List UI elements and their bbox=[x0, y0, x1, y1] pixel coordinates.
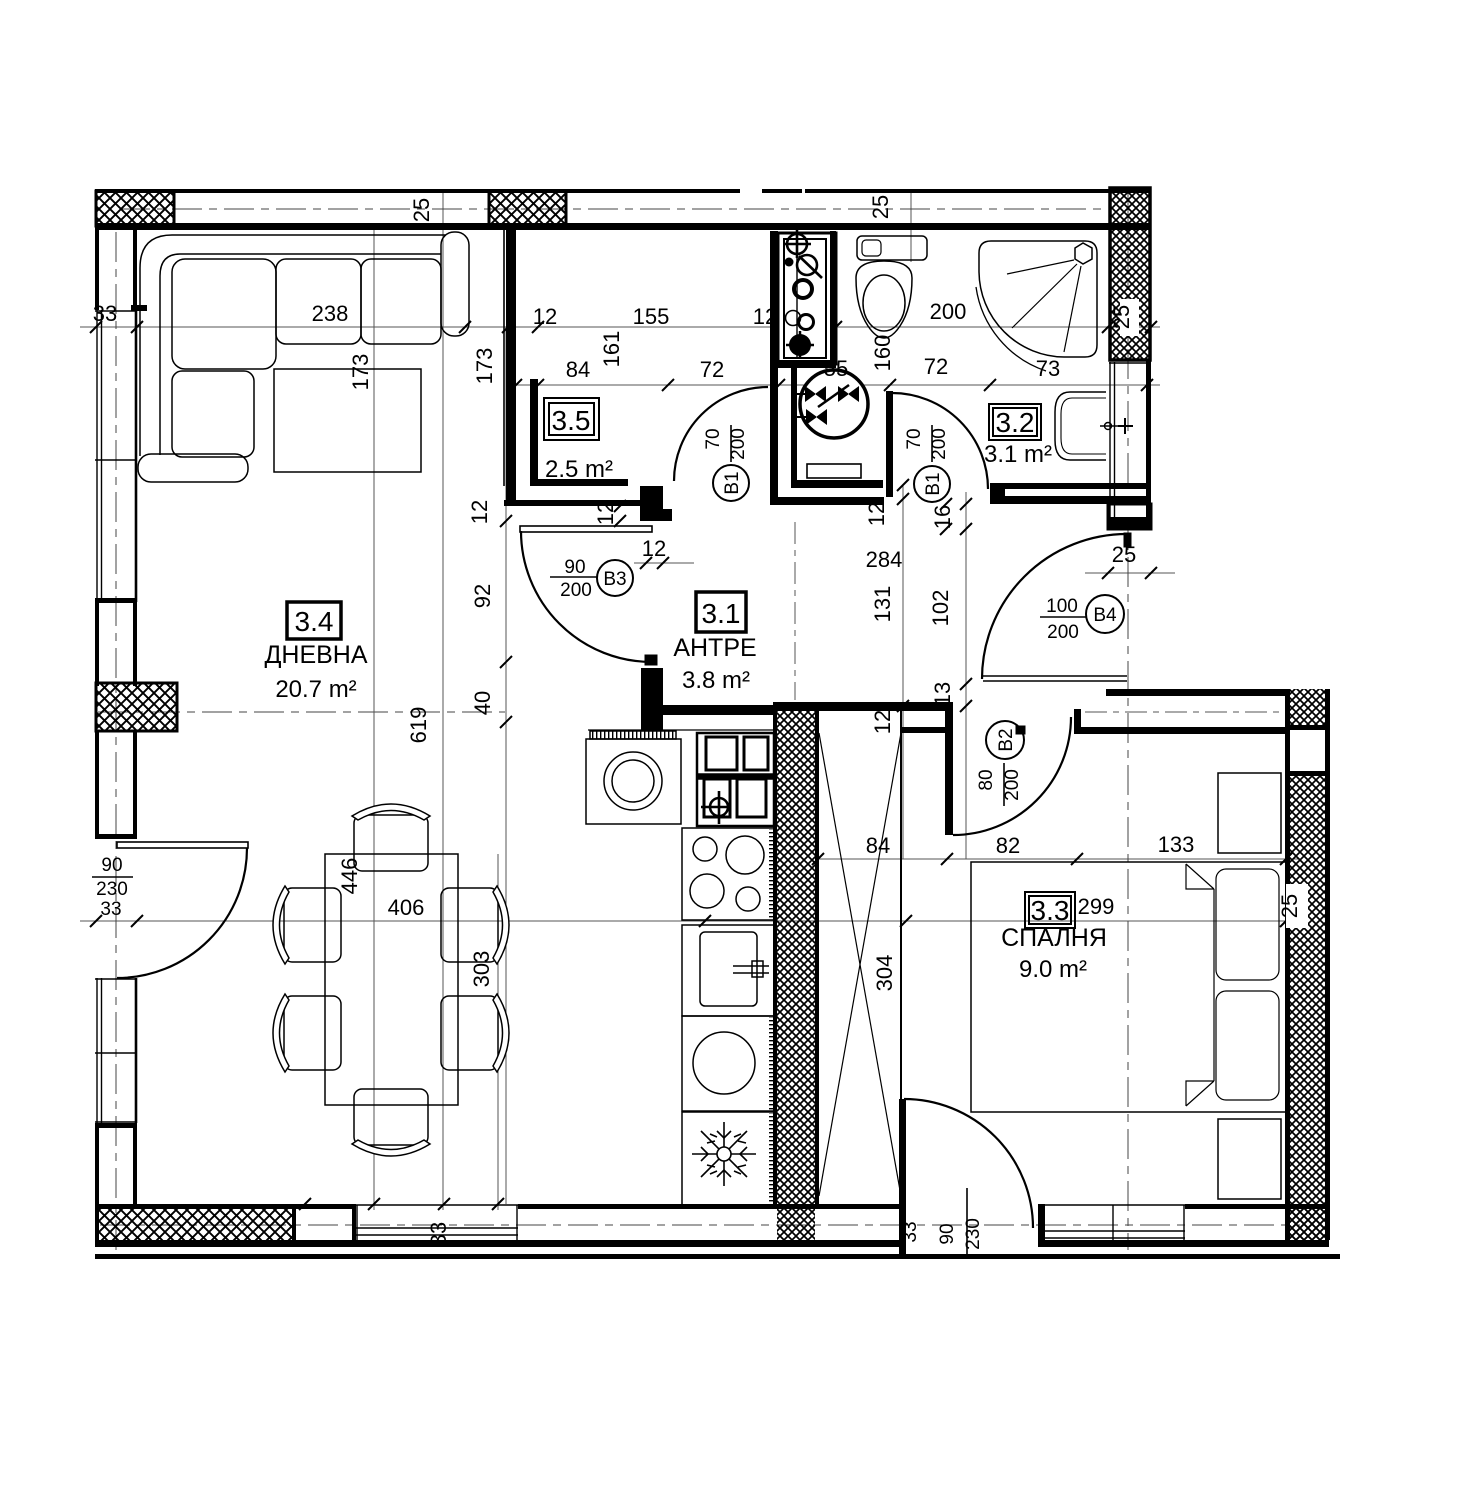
svg-text:СПАЛНЯ: СПАЛНЯ bbox=[1001, 924, 1107, 952]
svg-text:33: 33 bbox=[426, 1222, 451, 1246]
svg-text:25: 25 bbox=[409, 198, 434, 222]
svg-text:55: 55 bbox=[824, 356, 848, 381]
svg-text:84: 84 bbox=[866, 833, 890, 858]
svg-text:238: 238 bbox=[312, 301, 349, 326]
svg-text:АНТРЕ: АНТРЕ bbox=[673, 634, 756, 662]
svg-text:12: 12 bbox=[467, 500, 492, 524]
svg-text:619: 619 bbox=[406, 707, 431, 744]
svg-text:20.7 m²: 20.7 m² bbox=[275, 676, 356, 703]
svg-text:155: 155 bbox=[633, 304, 670, 329]
svg-text:40: 40 bbox=[470, 691, 495, 715]
svg-text:ДНЕВНА: ДНЕВНА bbox=[264, 641, 367, 669]
svg-text:131: 131 bbox=[870, 586, 895, 623]
svg-text:70: 70 bbox=[904, 428, 925, 449]
svg-text:33: 33 bbox=[900, 1221, 921, 1242]
svg-text:73: 73 bbox=[1036, 356, 1060, 381]
svg-text:200: 200 bbox=[560, 580, 592, 601]
svg-text:B1: B1 bbox=[722, 471, 743, 494]
svg-text:102: 102 bbox=[928, 590, 953, 627]
svg-text:200: 200 bbox=[728, 428, 749, 460]
svg-text:84: 84 bbox=[566, 357, 590, 382]
svg-text:B1: B1 bbox=[923, 472, 944, 495]
svg-text:12: 12 bbox=[870, 710, 895, 734]
svg-text:446: 446 bbox=[337, 858, 362, 895]
svg-text:200: 200 bbox=[1002, 769, 1023, 801]
svg-text:25: 25 bbox=[1109, 305, 1134, 329]
svg-text:3.1 m²: 3.1 m² bbox=[984, 441, 1052, 468]
svg-text:9.0 m²: 9.0 m² bbox=[1019, 956, 1087, 983]
svg-text:72: 72 bbox=[700, 357, 724, 382]
svg-text:3.4: 3.4 bbox=[295, 606, 334, 637]
svg-text:12: 12 bbox=[864, 502, 889, 526]
svg-text:25: 25 bbox=[1112, 542, 1136, 567]
svg-text:B4: B4 bbox=[1093, 605, 1117, 626]
svg-text:25: 25 bbox=[1277, 894, 1302, 918]
svg-text:16: 16 bbox=[930, 505, 955, 529]
svg-text:90: 90 bbox=[937, 1223, 958, 1244]
svg-text:133: 133 bbox=[1158, 832, 1195, 857]
svg-text:82: 82 bbox=[996, 833, 1020, 858]
svg-text:406: 406 bbox=[388, 895, 425, 920]
svg-text:80: 80 bbox=[976, 769, 997, 790]
svg-text:B3: B3 bbox=[603, 569, 626, 590]
svg-text:230: 230 bbox=[96, 879, 128, 900]
svg-text:3.8 m²: 3.8 m² bbox=[682, 667, 750, 694]
svg-text:173: 173 bbox=[348, 354, 373, 391]
svg-text:12: 12 bbox=[753, 304, 777, 329]
svg-text:72: 72 bbox=[924, 354, 948, 379]
svg-text:299: 299 bbox=[1078, 894, 1115, 919]
svg-text:3.2: 3.2 bbox=[996, 407, 1035, 438]
svg-text:173: 173 bbox=[472, 348, 497, 385]
svg-text:161: 161 bbox=[599, 331, 624, 368]
svg-text:2.5 m²: 2.5 m² bbox=[545, 456, 613, 483]
svg-text:92: 92 bbox=[470, 584, 495, 608]
svg-text:12: 12 bbox=[593, 501, 618, 525]
svg-text:70: 70 bbox=[703, 428, 724, 449]
svg-text:303: 303 bbox=[469, 951, 494, 988]
svg-text:13: 13 bbox=[930, 682, 955, 706]
svg-text:200: 200 bbox=[930, 299, 967, 324]
svg-text:12: 12 bbox=[642, 536, 666, 561]
svg-text:304: 304 bbox=[872, 955, 897, 992]
svg-text:25: 25 bbox=[868, 195, 893, 219]
svg-text:200: 200 bbox=[929, 428, 950, 460]
svg-text:200: 200 bbox=[1047, 622, 1079, 643]
svg-text:12: 12 bbox=[533, 304, 557, 329]
svg-text:284: 284 bbox=[866, 547, 903, 572]
svg-text:3.3: 3.3 bbox=[1031, 895, 1070, 926]
svg-text:3.5: 3.5 bbox=[552, 405, 591, 436]
svg-text:100: 100 bbox=[1046, 596, 1078, 617]
svg-text:33: 33 bbox=[93, 301, 117, 326]
svg-text:230: 230 bbox=[963, 1218, 984, 1250]
svg-text:33: 33 bbox=[100, 899, 121, 920]
svg-text:90: 90 bbox=[101, 855, 122, 876]
svg-text:B2: B2 bbox=[996, 728, 1017, 751]
svg-text:160: 160 bbox=[870, 335, 895, 372]
svg-text:90: 90 bbox=[564, 557, 585, 578]
svg-text:3.1: 3.1 bbox=[702, 598, 741, 629]
